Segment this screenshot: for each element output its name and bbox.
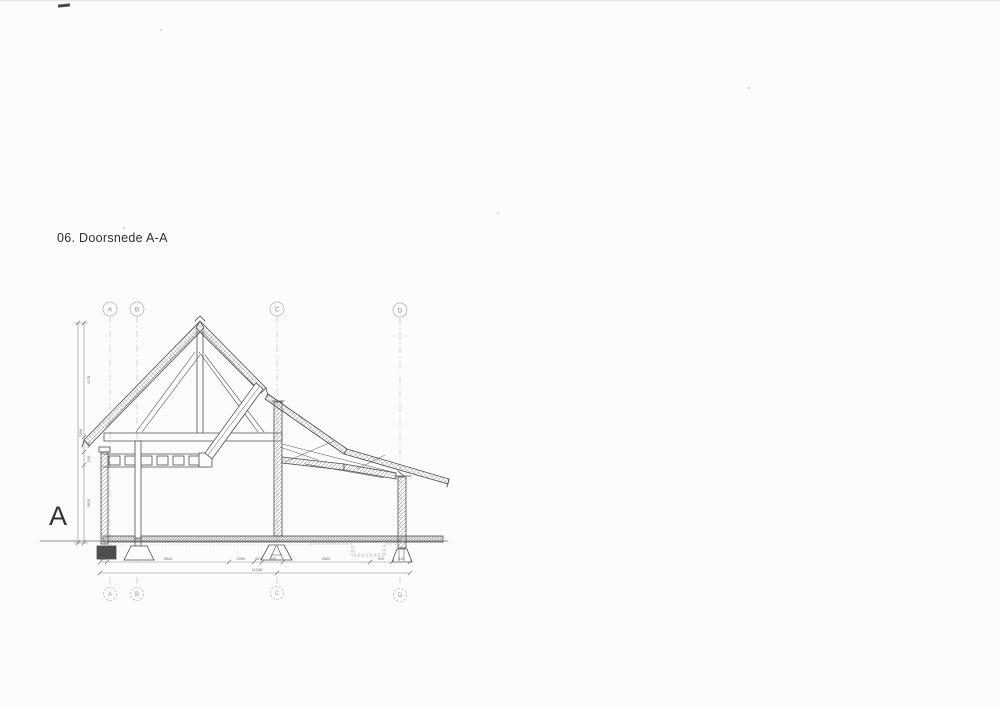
column-d <box>398 477 406 548</box>
roof-left-slope <box>84 321 204 446</box>
grid-bubble-letters-top: A B C D <box>108 306 403 314</box>
dim-h-seg-1: 235 <box>100 556 107 561</box>
grid-bubbles-bottom <box>104 587 407 602</box>
dim-h-seg-3: 2250 <box>237 556 246 561</box>
column-c <box>274 402 282 536</box>
grid-bubble-bottom-c: C <box>275 591 280 597</box>
grid-bubble-bottom-a: A <box>108 592 112 598</box>
dim-h-seg-2: 3544 <box>164 556 173 561</box>
king-post <box>197 331 203 433</box>
grid-bubble-top-d: D <box>398 307 403 314</box>
truss-struts <box>136 352 264 432</box>
column-b <box>135 441 141 538</box>
dim-h-seg-5: 905 <box>270 556 277 561</box>
dim-h-seg-8: 311 <box>398 556 404 561</box>
grid-bubbles-top <box>103 302 407 317</box>
grid-bubble-top-a: A <box>108 306 113 313</box>
dim-h-seg-4: 407 <box>255 556 262 561</box>
grid-bubble-top-b: B <box>135 306 139 313</box>
floor-recess-inner <box>354 546 383 554</box>
ceiling-beam-1 <box>282 457 344 470</box>
dim-h-total: 11248 <box>252 567 263 572</box>
footing-c <box>261 545 292 560</box>
wall-plate <box>99 447 110 452</box>
grid-bubble-bottom-b: B <box>135 592 139 598</box>
section-linework <box>40 316 449 562</box>
dim-h-seg-7: 910 <box>378 556 385 561</box>
dim-v-seg-3: 250 <box>86 455 91 462</box>
tie-beam <box>104 433 282 441</box>
footing-b <box>124 546 154 560</box>
dim-v-seg-4: 2620 <box>86 498 91 507</box>
grid-bubble-top-c: C <box>275 306 280 313</box>
building-section-drawing: 7306 4178 580 250 2620 <box>0 0 1000 707</box>
dim-v-seg-1: 4178 <box>86 376 91 385</box>
grid-bubble-bottom-d: D <box>398 593 403 599</box>
dim-h-seg-6: 2600 <box>322 556 331 561</box>
ridge-cap <box>195 316 205 321</box>
grid-bubble-letters-bottom: A B C D <box>108 591 403 599</box>
joist-band <box>103 454 207 467</box>
floor-slab <box>103 536 443 542</box>
dim-v-total: 7306 <box>78 429 83 438</box>
scanned-drawing-page: 06. Doorsnede A-A A <box>0 0 1000 707</box>
left-wall <box>101 452 108 544</box>
dim-v-seg-2: 580 <box>86 441 91 448</box>
